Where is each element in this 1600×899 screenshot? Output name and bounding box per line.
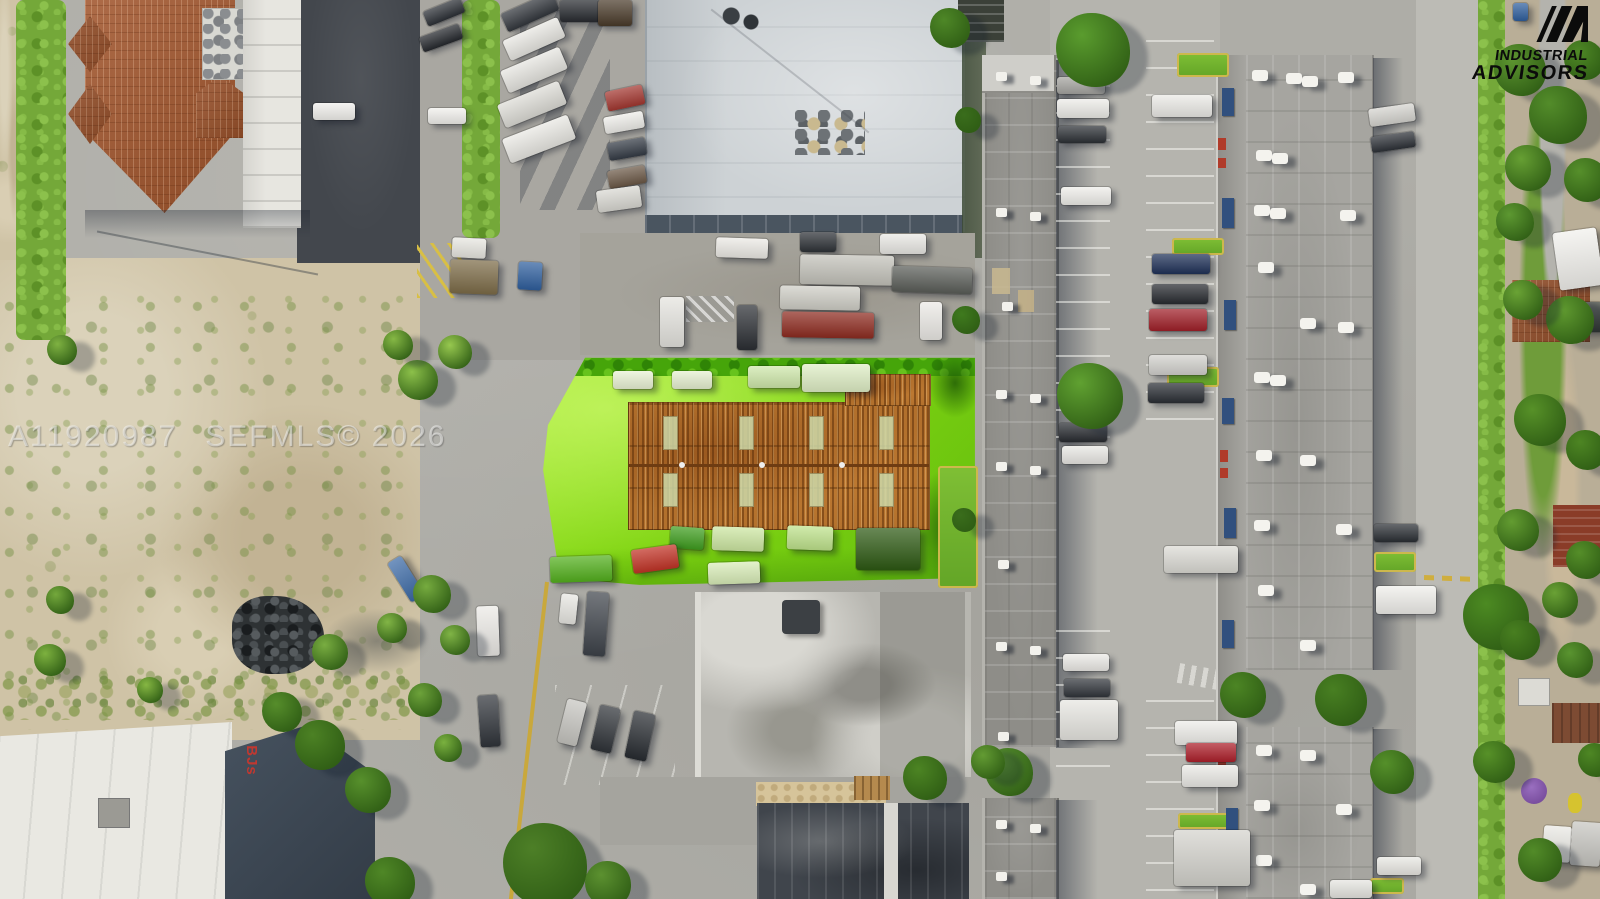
- aerial-photo-stage: BJs A11920987 SEFMLS© 2026: [0, 0, 1600, 899]
- tree: [971, 745, 1005, 779]
- tree: [1473, 741, 1515, 783]
- mls-credit: SEFMLS© 2026: [205, 420, 446, 454]
- tree: [1518, 838, 1562, 882]
- tree: [1503, 280, 1543, 320]
- tree: [903, 756, 947, 800]
- tree: [34, 644, 66, 676]
- tree: [1529, 86, 1587, 144]
- tree: [365, 857, 415, 899]
- tree: [952, 306, 980, 334]
- tree: [345, 767, 391, 813]
- tree: [1578, 743, 1600, 777]
- tree: [440, 625, 470, 655]
- tree: [1500, 620, 1540, 660]
- tree: [1220, 672, 1266, 718]
- tree: [46, 586, 74, 614]
- tree: [1315, 674, 1367, 726]
- tree: [1542, 582, 1578, 618]
- broker-logo: INDUSTRIAL ADVISORS: [1472, 5, 1588, 85]
- brand-line-2: ADVISORS: [1470, 62, 1590, 85]
- tree: [137, 677, 163, 703]
- tree: [295, 720, 345, 770]
- tree: [952, 508, 976, 532]
- tree: [377, 613, 407, 643]
- tree: [262, 692, 302, 732]
- tree: [1557, 642, 1593, 678]
- tree: [1496, 203, 1534, 241]
- tree: [1497, 509, 1539, 551]
- tree: [434, 734, 462, 762]
- tree: [1546, 296, 1594, 344]
- tree: [1056, 13, 1130, 87]
- tree: [438, 335, 472, 369]
- tree: [1370, 750, 1414, 794]
- tree: [383, 330, 413, 360]
- tree: [1566, 430, 1600, 470]
- tree: [312, 634, 348, 670]
- tree: [955, 107, 981, 133]
- listing-id: A11920987: [8, 420, 177, 454]
- tree: [1505, 145, 1551, 191]
- tree: [1514, 394, 1566, 446]
- tree: [398, 360, 438, 400]
- tree: [930, 8, 970, 48]
- tree: [413, 575, 451, 613]
- tree: [585, 861, 631, 899]
- tree: [408, 683, 442, 717]
- industrial-advisors-logo-mark-icon: [1528, 5, 1588, 48]
- tree: [1564, 158, 1600, 202]
- tree: [1566, 541, 1600, 579]
- tree: [1057, 363, 1123, 429]
- tree: [47, 335, 77, 365]
- tree: [503, 823, 587, 899]
- mls-watermark: A11920987 SEFMLS© 2026: [8, 420, 446, 454]
